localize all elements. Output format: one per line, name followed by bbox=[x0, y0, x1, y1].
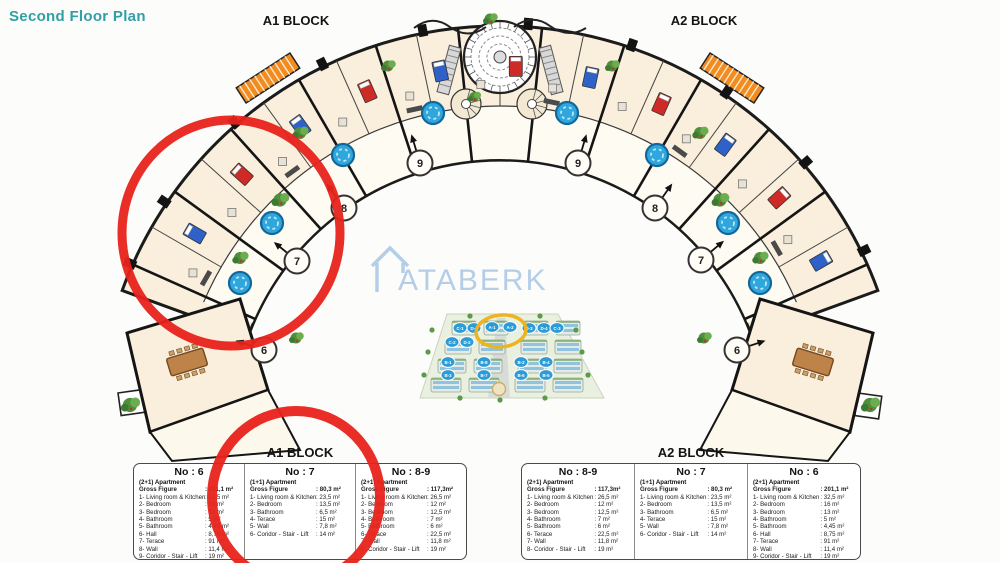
apartment-spec-column: No : 6(2+1) ApartmentGross Figure: 201,1… bbox=[134, 464, 244, 559]
render-tree bbox=[421, 372, 426, 377]
render-building bbox=[479, 340, 505, 354]
plan-block-label-a1: A1 BLOCK bbox=[236, 13, 356, 28]
render-tree bbox=[457, 395, 462, 400]
site-block-marker: B-1 bbox=[441, 357, 455, 368]
site-block-marker-label: B-3 bbox=[444, 373, 452, 378]
spec-row: 4- Bathroom: 7 m² bbox=[361, 516, 461, 523]
gross-figure-row: Gross Figure: 80,3 m² bbox=[640, 486, 742, 493]
spec-row: 5- Bathroom: 4,45 m² bbox=[753, 523, 855, 530]
unit-number: No : 8-9 bbox=[527, 466, 629, 478]
spec-row: 7- Wall: 11,8 m² bbox=[527, 538, 629, 545]
plant-icon bbox=[697, 332, 712, 343]
spec-row: 6- Hall: 8,75 m² bbox=[139, 531, 239, 538]
render-tree bbox=[585, 372, 590, 377]
site-block-marker: B-4 bbox=[539, 357, 553, 368]
watermark: ATABERK bbox=[368, 240, 548, 296]
render-tree bbox=[537, 313, 542, 318]
facade-notch bbox=[859, 248, 870, 253]
unit-marker-number: 9 bbox=[417, 158, 423, 170]
unit-marker-number: 8 bbox=[341, 203, 347, 215]
site-block-marker-label: A-1 bbox=[488, 325, 496, 330]
spec-row: 3- Bedroom: 13 m² bbox=[139, 509, 239, 516]
spec-row: 2- Bedroom: 12 m² bbox=[527, 501, 629, 508]
spec-row: 2- Bedroom: 16 m² bbox=[139, 501, 239, 508]
apartment-spec-column: No : 7(1+1) ApartmentGross Figure: 80,3 … bbox=[244, 464, 355, 559]
spec-row: 1- Living room & Kitchen: 23,5 m² bbox=[640, 494, 742, 501]
unit-number: No : 7 bbox=[640, 466, 742, 478]
plan-block-label-a2: A2 BLOCK bbox=[644, 13, 764, 28]
site-block-marker: C-2 bbox=[445, 337, 459, 348]
site-block-marker-label: B-2 bbox=[517, 360, 525, 365]
spec-row: 2- Bedroom: 13,5 m² bbox=[250, 501, 350, 508]
a2-spec-table: No : 8-9(2+1) ApartmentGross Figure: 117… bbox=[521, 463, 861, 560]
site-block-marker: A-2 bbox=[503, 322, 517, 333]
render-tree bbox=[497, 397, 502, 402]
spec-row: 6- Terace: 22,5 m² bbox=[361, 531, 461, 538]
site-block-marker: B-7 bbox=[477, 370, 491, 381]
plant-icon bbox=[289, 332, 304, 343]
unit-number: No : 6 bbox=[139, 466, 239, 478]
unit-marker-number: 8 bbox=[652, 203, 658, 215]
render-roundabout bbox=[493, 383, 506, 396]
spec-row: 3- Bedroom: 13 m² bbox=[753, 509, 855, 516]
unit-marker-number: 6 bbox=[734, 345, 740, 357]
spec-row: 4- Bathroom: 7 m² bbox=[527, 516, 629, 523]
site-block-marker-label: C-3 bbox=[553, 326, 561, 331]
jacuzzi-icon bbox=[422, 102, 444, 124]
a1-spec-table: No : 6(2+1) ApartmentGross Figure: 201,1… bbox=[133, 463, 467, 560]
site-block-marker: D-1 bbox=[467, 323, 481, 334]
spec-row: 6- Coridor - Stair - Lift: 14 m² bbox=[250, 531, 350, 538]
spec-row: 7- Wall: 11,8 m² bbox=[361, 538, 461, 545]
gross-figure-row: Gross Figure: 80,3 m² bbox=[250, 486, 350, 493]
facade-notch bbox=[422, 25, 424, 37]
spec-row: 1- Living room & Kitchen: 26,5 m² bbox=[527, 494, 629, 501]
spec-row: 6- Terace: 22,5 m² bbox=[527, 531, 629, 538]
apartment-spec-column: No : 7(1+1) ApartmentGross Figure: 80,3 … bbox=[634, 464, 747, 559]
render-building bbox=[555, 340, 581, 354]
spec-row: 3- Bedroom: 12,5 m² bbox=[527, 509, 629, 516]
apartment-type: (2+1) Apartment bbox=[753, 479, 855, 486]
render-tree bbox=[542, 395, 547, 400]
apartment-spec-column: No : 6(2+1) ApartmentGross Figure: 201,1… bbox=[747, 464, 860, 559]
jacuzzi-icon bbox=[332, 144, 354, 166]
site-block-marker: A-1 bbox=[485, 322, 499, 333]
unit-marker-number: 6 bbox=[261, 345, 267, 357]
spec-row: 1- Living room & Kitchen: 26,5 m² bbox=[361, 494, 461, 501]
render-tree bbox=[429, 327, 434, 332]
spec-row: 1- Living room & Kitchen: 23,5 m² bbox=[250, 494, 350, 501]
unit-marker-number: 9 bbox=[575, 158, 581, 170]
apartment-type: (1+1) Apartment bbox=[250, 479, 350, 486]
apartment-type: (2+1) Apartment bbox=[527, 479, 629, 486]
facade-notch bbox=[801, 158, 810, 166]
site-block-marker-label: C-1 bbox=[456, 326, 464, 331]
unit-marker-number: 7 bbox=[294, 256, 300, 268]
site-block-marker: B-5 bbox=[539, 370, 553, 381]
site-block-marker-label: B-7 bbox=[480, 373, 488, 378]
spec-row: 3- Bathroom: 6,5 m² bbox=[640, 509, 742, 516]
apartment-type: (2+1) Apartment bbox=[361, 479, 461, 486]
unit-marker-number: 7 bbox=[698, 255, 704, 267]
site-block-marker-label: D-4 bbox=[540, 326, 548, 331]
spec-row: 4- Terace: 15 m² bbox=[250, 516, 350, 523]
render-tree bbox=[425, 349, 430, 354]
jacuzzi-icon bbox=[646, 144, 668, 166]
apartment-type: (1+1) Apartment bbox=[640, 479, 742, 486]
apartment-spec-column: No : 8-9(2+1) ApartmentGross Figure: 117… bbox=[355, 464, 466, 559]
spec-row: 2- Bedroom: 12 m² bbox=[361, 501, 461, 508]
spec-row: 7- Terace: 91 m² bbox=[139, 538, 239, 545]
spec-row: 5- Wall: 7,8 m² bbox=[640, 523, 742, 530]
jacuzzi-icon bbox=[261, 212, 283, 234]
unit-number: No : 6 bbox=[753, 466, 855, 478]
unit-number: No : 8-9 bbox=[361, 466, 461, 478]
spec-row: 2- Bedroom: 16 m² bbox=[753, 501, 855, 508]
facade-notch bbox=[320, 59, 325, 70]
a2-table-title: A2 BLOCK bbox=[521, 445, 861, 460]
a1-table-title: A1 BLOCK bbox=[133, 445, 467, 460]
site-block-marker: B-3 bbox=[441, 370, 455, 381]
apartment-type: (2+1) Apartment bbox=[139, 479, 239, 486]
spec-row: 3- Bedroom: 12,5 m² bbox=[361, 509, 461, 516]
floor-plan-page: Second Floor Plan A1 BLOCK A2 BLOCK 6789… bbox=[0, 0, 1000, 563]
site-block-marker-label: B-5 bbox=[542, 373, 550, 378]
spec-row: 8- Wall: 11,4 m² bbox=[139, 546, 239, 553]
spec-row: 9- Coridor - Stair - Lift: 19 m² bbox=[753, 553, 855, 560]
facade-notch bbox=[159, 198, 169, 205]
site-block-marker-label: C-2 bbox=[448, 340, 456, 345]
spec-row: 1- Living room & Kitchen: 32,5 m² bbox=[753, 494, 855, 501]
site-block-marker: D-3 bbox=[522, 323, 536, 334]
spec-row: 3- Bathroom: 6,5 m² bbox=[250, 509, 350, 516]
site-block-marker: B-6 bbox=[514, 370, 528, 381]
site-block-marker-label: B-1 bbox=[444, 360, 452, 365]
spec-row: 5- Wall: 7,8 m² bbox=[250, 523, 350, 530]
site-block-marker-label: B-6 bbox=[517, 373, 525, 378]
spec-row: 1- Living room & Kitchen: 32,5 m² bbox=[139, 494, 239, 501]
site-block-marker: B-2 bbox=[514, 357, 528, 368]
gross-figure-row: Gross Figure: 117,3m² bbox=[527, 486, 629, 493]
spec-row: 8- Coridor - Stair - Lift: 19 m² bbox=[361, 546, 461, 553]
site-block-marker: B-8 bbox=[477, 357, 491, 368]
facade-notch bbox=[723, 87, 730, 97]
site-block-marker: D-4 bbox=[537, 323, 551, 334]
gross-figure-row: Gross Figure: 201,1 m² bbox=[753, 486, 855, 493]
spec-row: 7- Terace: 91 m² bbox=[753, 538, 855, 545]
spec-row: 5- Bathroom: 6 m² bbox=[361, 523, 461, 530]
spec-row: 4- Terace: 15 m² bbox=[640, 516, 742, 523]
watermark-text: ATABERK bbox=[398, 266, 548, 296]
site-block-marker: C-1 bbox=[453, 323, 467, 334]
page-title: Second Floor Plan bbox=[9, 8, 146, 25]
spec-row: 8- Coridor - Stair - Lift: 19 m² bbox=[527, 546, 629, 553]
jacuzzi-icon bbox=[749, 272, 771, 294]
site-block-marker-label: D-2 bbox=[463, 340, 471, 345]
spec-row: 4- Bathroom: 5 m² bbox=[753, 516, 855, 523]
site-block-marker-label: B-4 bbox=[542, 360, 550, 365]
render-tree bbox=[579, 349, 584, 354]
jacuzzi-icon bbox=[229, 272, 251, 294]
site-block-marker-label: D-3 bbox=[525, 326, 533, 331]
site-render: C-1D-1A-1A-2D-3D-4C-3C-2D-2B-1B-8B-2B-4B… bbox=[420, 313, 604, 402]
site-block-marker: D-2 bbox=[460, 337, 474, 348]
facade-notch bbox=[230, 118, 238, 127]
spec-row: 2- Bedroom: 13,5 m² bbox=[640, 501, 742, 508]
spec-row: 5- Bathroom: 4,45 m² bbox=[139, 523, 239, 530]
gross-figure-row: Gross Figure: 201,1 m² bbox=[139, 486, 239, 493]
site-block-marker: C-3 bbox=[550, 323, 564, 334]
spec-row: 6- Coridor - Stair - Lift: 14 m² bbox=[640, 531, 742, 538]
render-building bbox=[553, 378, 583, 392]
fan-seat-icon bbox=[517, 89, 547, 119]
spec-row: 8- Wall: 11,4 m² bbox=[753, 546, 855, 553]
render-tree bbox=[573, 327, 578, 332]
spec-row: 9- Coridor - Stair - Lift: 19 m² bbox=[139, 553, 239, 560]
site-block-marker-label: A-2 bbox=[506, 325, 514, 330]
render-building bbox=[521, 340, 547, 354]
site-block-marker-label: B-8 bbox=[480, 360, 488, 365]
facade-notch bbox=[630, 39, 634, 50]
render-tree bbox=[467, 313, 472, 318]
jacuzzi-icon bbox=[556, 102, 578, 124]
unit-number: No : 7 bbox=[250, 466, 350, 478]
site-block-marker-label: D-1 bbox=[470, 326, 478, 331]
jacuzzi-icon bbox=[717, 212, 739, 234]
spec-row: 6- Hall: 8,75 m² bbox=[753, 531, 855, 538]
gross-figure-row: Gross Figure: 117,3m² bbox=[361, 486, 461, 493]
spec-row: 4- Bathroom: 5 m² bbox=[139, 516, 239, 523]
apartment-spec-column: No : 8-9(2+1) ApartmentGross Figure: 117… bbox=[522, 464, 634, 559]
spec-row: 5- Bathroom: 6 m² bbox=[527, 523, 629, 530]
render-building bbox=[554, 359, 582, 373]
